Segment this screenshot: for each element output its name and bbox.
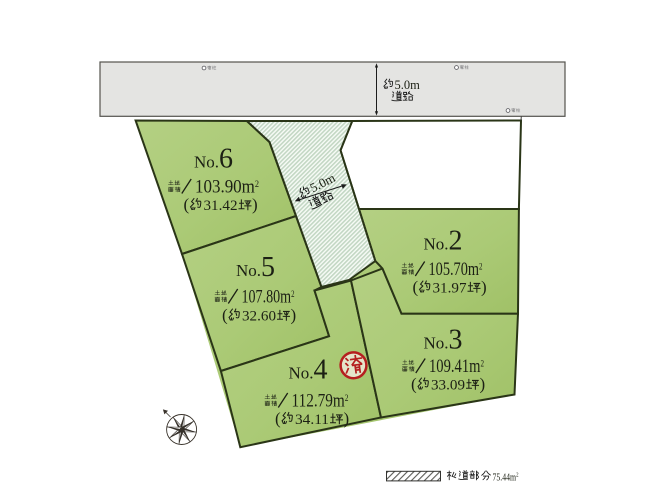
svg-text:5: 5 xyxy=(261,252,275,283)
svg-text:No.: No. xyxy=(236,261,261,280)
svg-text:107.80m2: 107.80m2 xyxy=(242,288,295,308)
svg-text:75.44m2: 75.44m2 xyxy=(493,472,519,484)
svg-text:5.0m: 5.0m xyxy=(395,78,421,92)
svg-text:34.11: 34.11 xyxy=(295,412,329,428)
svg-text:103.90m2: 103.90m2 xyxy=(195,178,259,198)
svg-text:): ) xyxy=(291,306,297,325)
svg-text:(: ( xyxy=(275,409,281,428)
svg-text:): ) xyxy=(344,409,350,428)
svg-text:112.79m2: 112.79m2 xyxy=(292,392,349,412)
svg-text:(: ( xyxy=(413,278,419,297)
svg-text:109.41m2: 109.41m2 xyxy=(429,357,484,377)
svg-text:33.09: 33.09 xyxy=(431,378,465,394)
svg-text:No.: No. xyxy=(424,235,449,254)
svg-text:): ) xyxy=(252,195,258,214)
svg-text:(: ( xyxy=(184,195,190,214)
svg-text:No.: No. xyxy=(424,334,449,353)
svg-text:): ) xyxy=(481,278,487,297)
svg-text:No.: No. xyxy=(289,364,314,383)
svg-text:105.70m2: 105.70m2 xyxy=(429,260,483,280)
svg-text:): ) xyxy=(480,375,486,394)
svg-text:31.42: 31.42 xyxy=(204,198,238,214)
svg-text:4: 4 xyxy=(314,355,328,386)
svg-text:No.: No. xyxy=(194,153,219,172)
svg-text:32.60: 32.60 xyxy=(242,309,276,325)
svg-text:6: 6 xyxy=(219,144,233,175)
svg-text:(: ( xyxy=(411,375,417,394)
svg-text:2: 2 xyxy=(449,226,463,257)
svg-text:3: 3 xyxy=(449,325,463,356)
svg-text:31.97: 31.97 xyxy=(433,281,468,297)
svg-text:(: ( xyxy=(222,306,228,325)
